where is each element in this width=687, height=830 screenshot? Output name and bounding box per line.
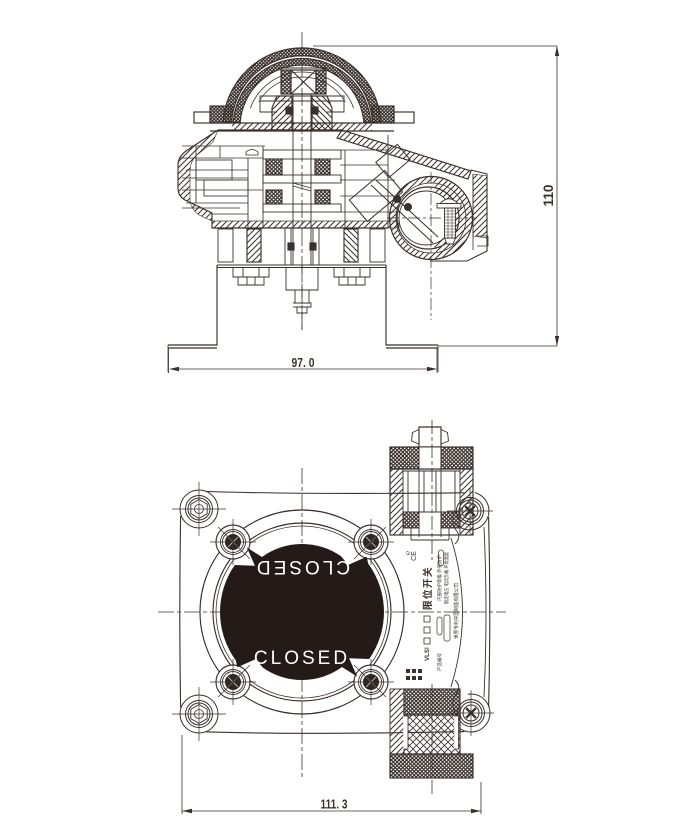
svg-text:CLOSED: CLOSED <box>254 648 350 669</box>
svg-text:111. 3: 111. 3 <box>321 797 348 812</box>
svg-text:CE: CE <box>411 551 418 561</box>
svg-text:限位开关: 限位开关 <box>422 566 434 610</box>
svg-text:额定电压 电流负载 环境温度: 额定电压 电流负载 环境温度 <box>443 552 450 604</box>
svg-text:110: 110 <box>541 185 556 207</box>
svg-text:VLS!: VLS! <box>425 647 431 661</box>
svg-text:内部防护等级 外壳防护: 内部防护等级 外壳防护 <box>436 555 443 601</box>
svg-text:CLOSED: CLOSED <box>254 556 350 577</box>
svg-text:97. 0: 97. 0 <box>292 355 315 370</box>
svg-text:产品编号: 产品编号 <box>436 653 443 671</box>
svg-text:世界专利中国制造有限公司: 世界专利中国制造有限公司 <box>452 583 460 639</box>
